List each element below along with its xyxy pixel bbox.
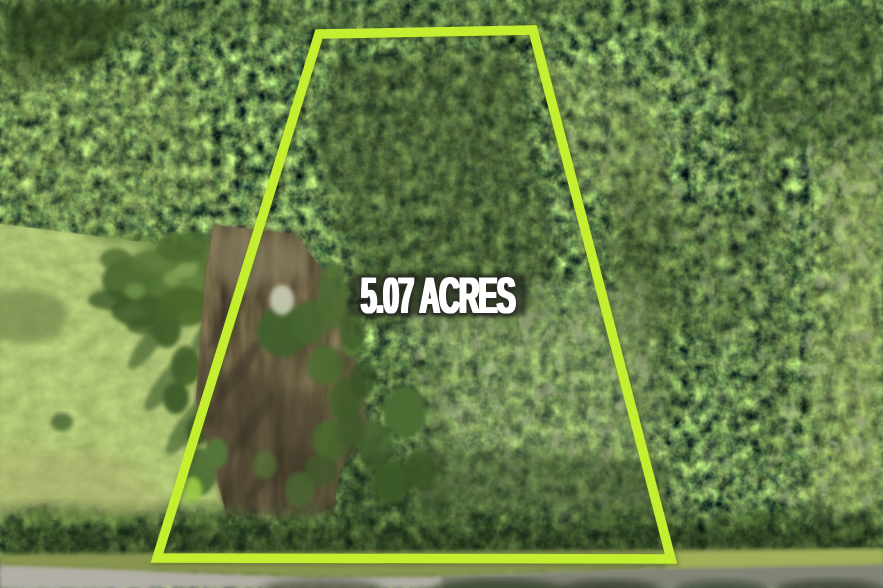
svg-text:5.07 ACRES: 5.07 ACRES [362, 267, 516, 324]
